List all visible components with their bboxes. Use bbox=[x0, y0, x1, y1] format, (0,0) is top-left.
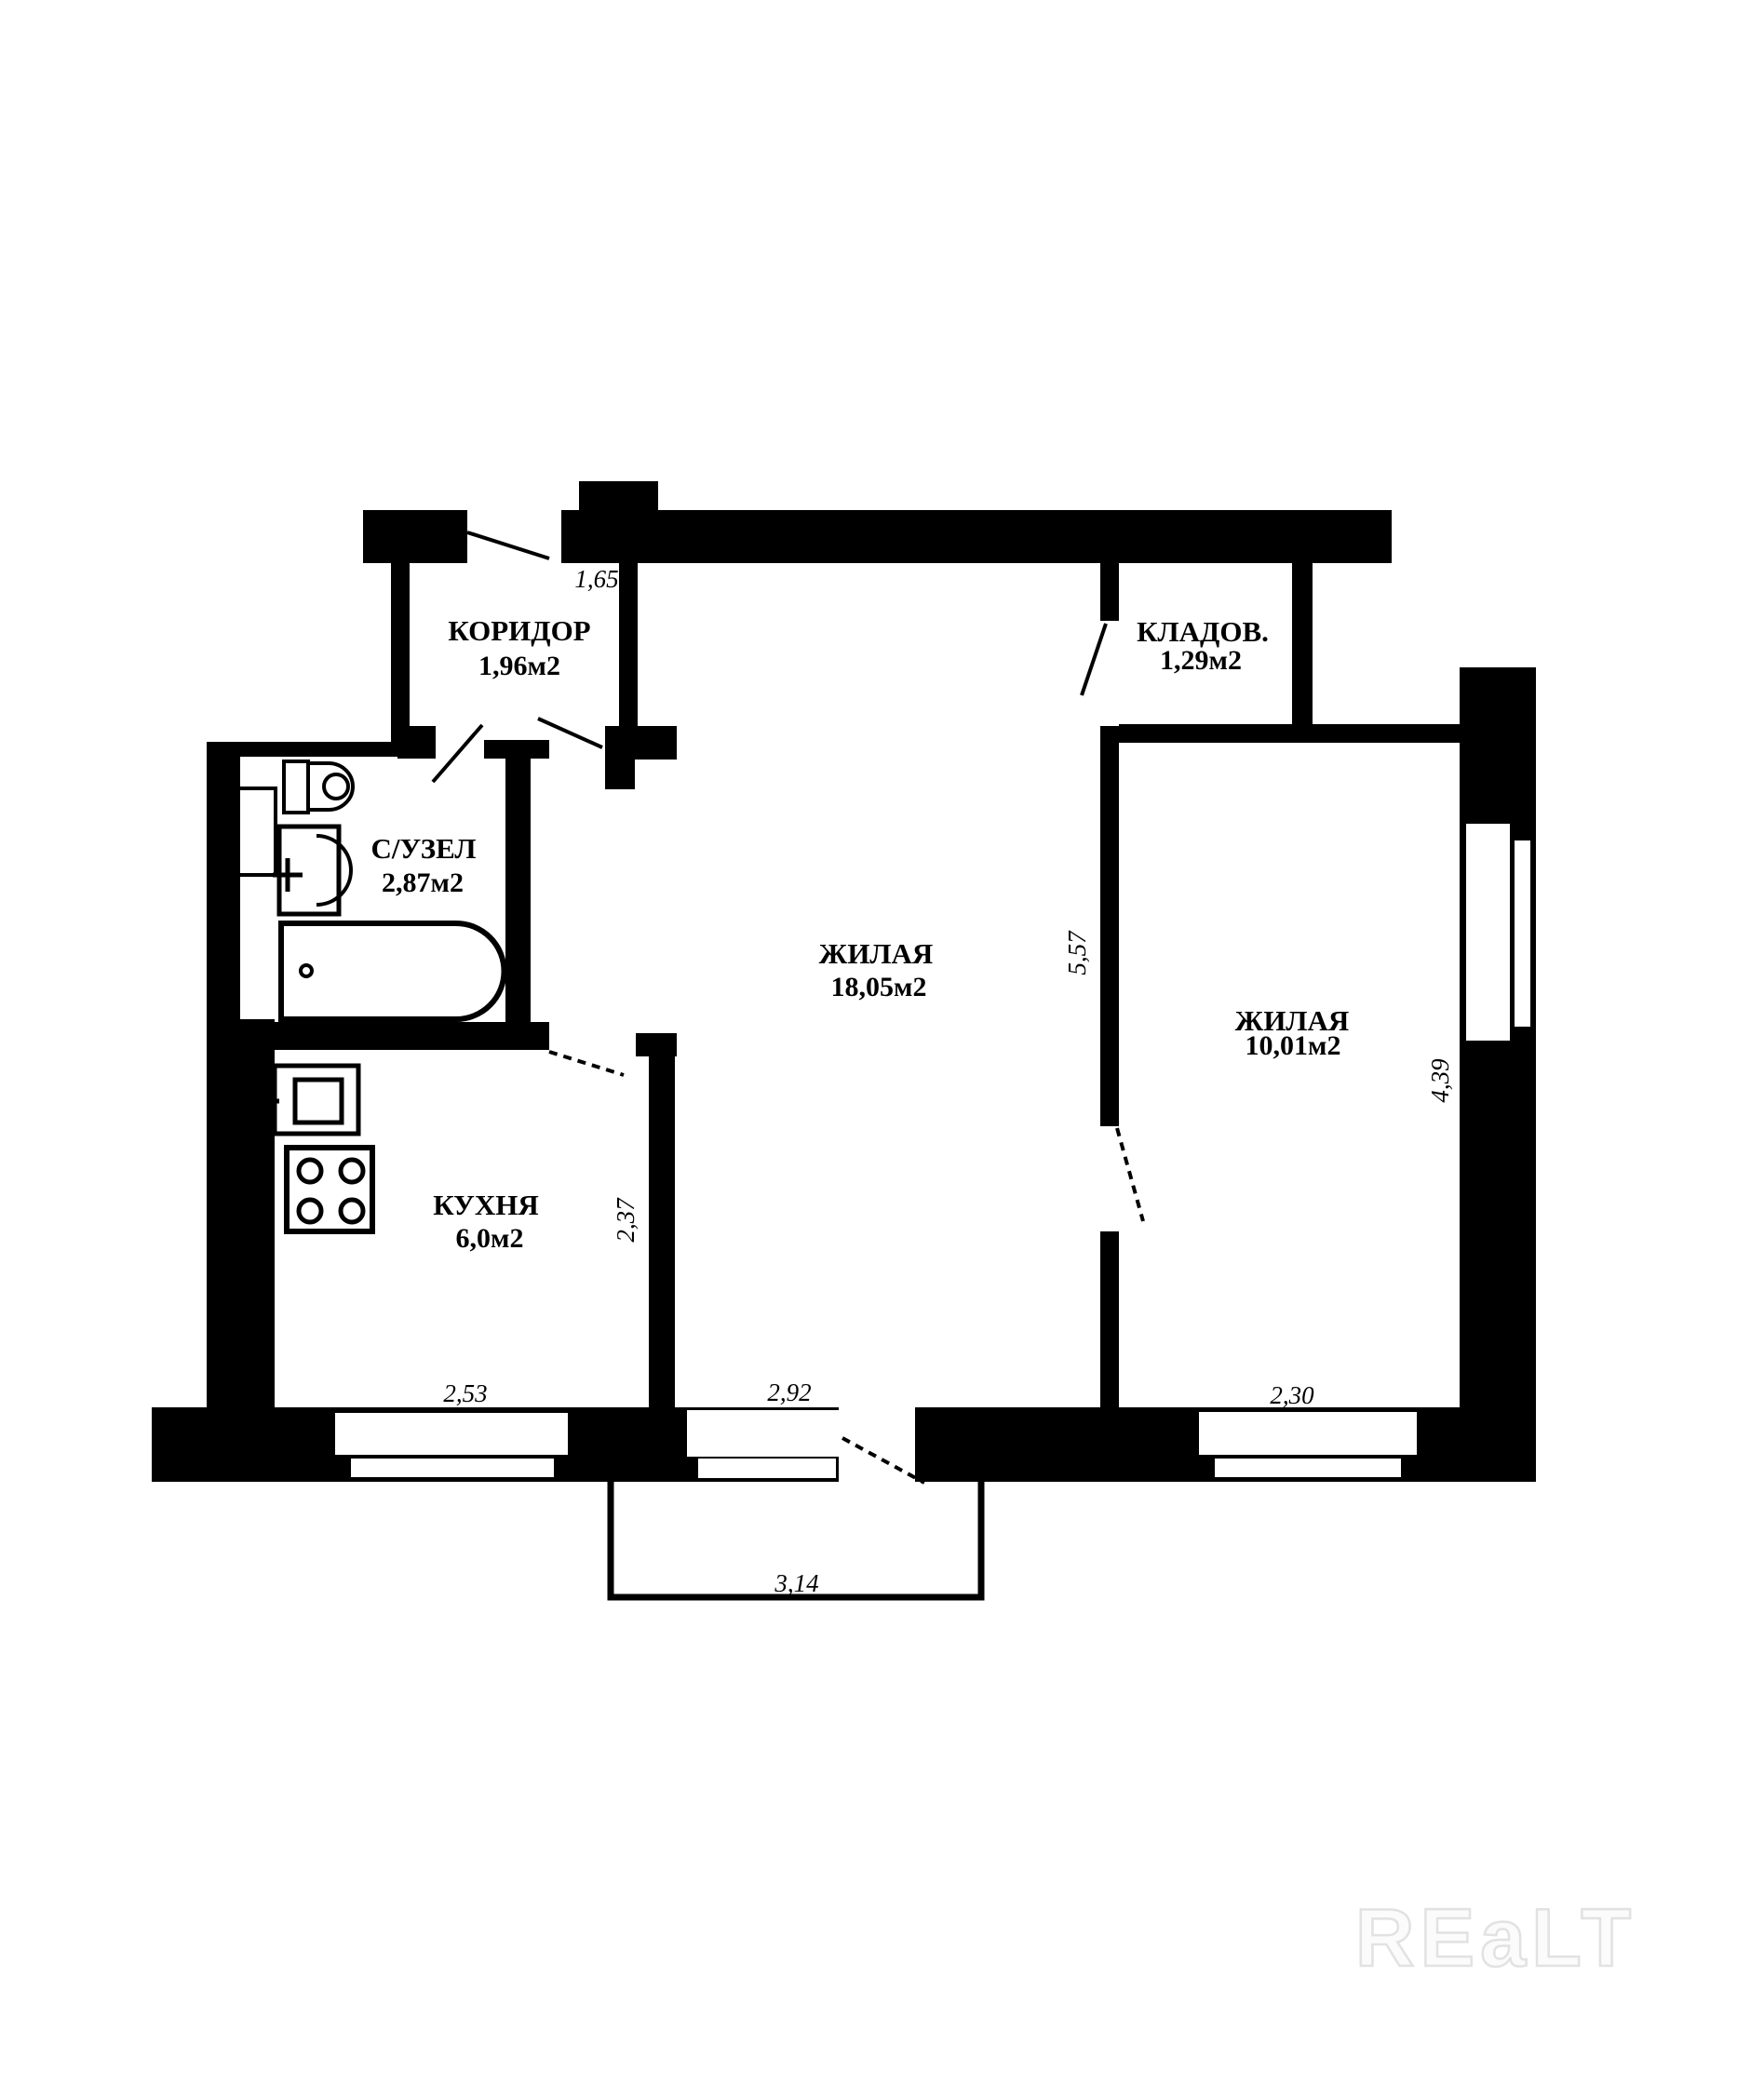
toilet-icon bbox=[284, 761, 353, 813]
wall-segment bbox=[240, 1022, 549, 1050]
wall-segment bbox=[207, 742, 240, 1036]
duct-shaft bbox=[238, 788, 276, 875]
wall-segment bbox=[579, 481, 658, 512]
wall-segment bbox=[1460, 667, 1536, 1482]
room-label-kitchen: КУХНЯ bbox=[433, 1189, 539, 1221]
room-area-bedroom: 10,01м2 bbox=[1246, 1030, 1341, 1061]
wall-segment bbox=[1292, 556, 1313, 733]
floor-plan-page: КОРИДОР 1,96м2 С/УЗЕЛ 2,87м2 КУХНЯ 6,0м2… bbox=[0, 0, 1764, 2084]
stove-icon bbox=[287, 1148, 372, 1231]
dim-living-depth: 5,57 bbox=[1063, 930, 1091, 975]
wall-segment bbox=[505, 757, 531, 1041]
wall-segment bbox=[240, 742, 428, 757]
balcony-door-opening bbox=[839, 1407, 915, 1482]
room-label-storage: КЛАДОВ. bbox=[1137, 615, 1269, 648]
dim-kitchen-width: 2,53 bbox=[443, 1379, 487, 1407]
room-area-corridor: 1,96м2 bbox=[478, 651, 560, 681]
room-area-kitchen: 6,0м2 bbox=[456, 1223, 524, 1254]
dim-living-window-width: 2,92 bbox=[767, 1378, 811, 1406]
washbasin-icon bbox=[273, 827, 351, 914]
bedroom-side-window-pane bbox=[1515, 840, 1530, 1027]
wall-segment bbox=[1100, 563, 1119, 621]
bathroom-door-leaf bbox=[433, 725, 482, 782]
wall-segment bbox=[649, 1033, 675, 1410]
wall-segment bbox=[391, 563, 410, 747]
kitchen-window-pane bbox=[351, 1459, 554, 1477]
bedroom-side-window bbox=[1466, 824, 1510, 1041]
room-label-living: ЖИЛАЯ bbox=[819, 937, 934, 970]
living-window-pane bbox=[698, 1459, 836, 1478]
room-area-living: 18,05м2 bbox=[831, 972, 927, 1002]
dim-entry-width: 1,65 bbox=[574, 565, 618, 593]
bedroom-window-pane bbox=[1215, 1459, 1401, 1477]
bedroom-window bbox=[1199, 1412, 1417, 1455]
dim-bedroom-depth: 4,39 bbox=[1426, 1058, 1454, 1103]
storage-door-leaf bbox=[1082, 624, 1106, 695]
wall-segment bbox=[605, 743, 635, 789]
wall-segment bbox=[1119, 724, 1460, 743]
dim-kitchen-depth: 2,37 bbox=[612, 1197, 640, 1243]
wall-segment bbox=[1100, 726, 1119, 1126]
floor-plan: КОРИДОР 1,96м2 С/УЗЕЛ 2,87м2 КУХНЯ 6,0м2… bbox=[0, 0, 1764, 2084]
room-label-bathroom: С/УЗЕЛ bbox=[370, 832, 476, 865]
kitchen-door-leaf bbox=[549, 1052, 624, 1075]
wall-segment bbox=[207, 1019, 275, 1410]
bedroom-door-leaf bbox=[1117, 1128, 1143, 1221]
room-area-storage: 1,29м2 bbox=[1160, 645, 1242, 676]
entrance-door-leaf bbox=[467, 532, 549, 558]
room-area-bathroom: 2,87м2 bbox=[382, 867, 464, 898]
wall-segment bbox=[484, 740, 549, 759]
realt-watermark: REaLT bbox=[1355, 1891, 1636, 1983]
living-window bbox=[687, 1410, 839, 1457]
dim-balcony-width: 3,14 bbox=[774, 1569, 818, 1597]
wall-segment bbox=[561, 510, 1392, 563]
bathtub-icon bbox=[281, 923, 505, 1019]
wall-segment bbox=[363, 510, 467, 563]
wall-segment bbox=[1100, 1231, 1119, 1410]
kitchen-window bbox=[335, 1413, 568, 1455]
dim-bedroom-width: 2,30 bbox=[1270, 1381, 1314, 1409]
room-label-corridor: КОРИДОР bbox=[448, 614, 590, 647]
